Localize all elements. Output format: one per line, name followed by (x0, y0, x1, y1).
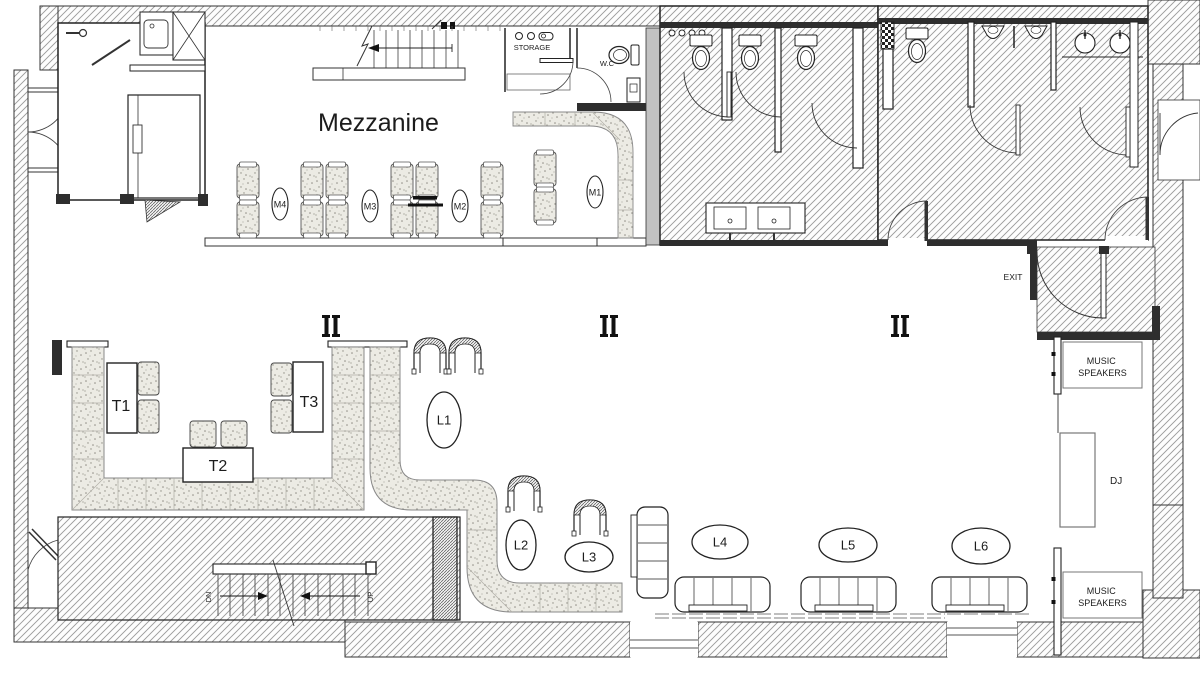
table-t1: T1 (107, 362, 159, 433)
storage-roll-icon (539, 33, 553, 41)
low-wall-line (655, 614, 1030, 618)
mezzanine-table-bar (413, 196, 437, 200)
tub-chair-icon (572, 500, 608, 536)
wc-partition-wall (646, 28, 660, 245)
stall-wall (883, 49, 893, 109)
mezzanine-table-bar (408, 204, 443, 207)
wc-wall (577, 103, 649, 111)
label-l1: L1 (437, 413, 451, 428)
stall-wall (853, 28, 863, 168)
basin-icon (714, 207, 746, 229)
label-t2: T2 (209, 458, 228, 475)
wc-basin-icon (627, 78, 640, 102)
wall-top-left-corner (40, 6, 58, 70)
wall-bottom-right-corner (1143, 590, 1200, 658)
mezzanine-chair (534, 150, 556, 188)
label-l3: L3 (582, 550, 596, 565)
ladies-toilets (660, 6, 878, 245)
column-icon (891, 315, 909, 337)
storage-room: STORAGE (505, 28, 573, 94)
lift-door-icon (145, 200, 180, 222)
mezzanine-chair (237, 200, 259, 238)
wc-door-swing (577, 68, 611, 102)
utility-rooms (56, 12, 208, 222)
label-l6: L6 (974, 539, 988, 554)
mezzanine-stair (313, 20, 500, 80)
table-t3: T3 (271, 362, 323, 433)
wall-stub-2 (120, 194, 134, 204)
column-icon (322, 315, 340, 337)
label-t1: T1 (112, 398, 131, 415)
label-storage: STORAGE (514, 43, 551, 52)
threshold-1 (630, 622, 698, 657)
mezzanine-rail (205, 238, 646, 246)
mezzanine-chair (237, 162, 259, 200)
label-music-top-1: MUSIC (1087, 356, 1117, 366)
chair (221, 421, 247, 447)
exit-door-leaf (1101, 252, 1106, 318)
label-wc: W.C (600, 59, 615, 68)
wall-left (14, 70, 28, 608)
right-side-room (1158, 100, 1200, 180)
lounge-seating: L1 L2 L3 L4 L5 L6 (412, 338, 1030, 618)
chair (138, 400, 159, 433)
speaker-box-bottom: MUSIC SPEAKERS (1063, 572, 1142, 618)
toilet-icon (795, 35, 817, 70)
bench-sofa (631, 507, 668, 598)
wall-notch (1152, 306, 1160, 334)
toilet-icon (906, 28, 928, 63)
floor-plan: Mezzanine (0, 0, 1200, 675)
vestibule-floor (1037, 247, 1155, 332)
mezzanine-chair (326, 162, 348, 200)
mezzanine-chair (326, 200, 348, 238)
wall-bottom-1 (345, 622, 630, 657)
mens-toilets (878, 6, 1148, 240)
speaker-stand-top (1052, 337, 1062, 394)
label-t3: T3 (300, 394, 319, 411)
toilet-icon (690, 35, 712, 70)
stair-wall (433, 517, 457, 620)
stair-rail (213, 564, 371, 574)
storage-bin-icon (528, 33, 535, 40)
stall-wall (968, 22, 974, 107)
label-dj: DJ (1110, 476, 1122, 487)
label-mezzanine: Mezzanine (318, 109, 439, 137)
chair (271, 400, 292, 433)
label-music-top-2: SPEAKERS (1078, 368, 1127, 378)
stair-newel (366, 562, 376, 574)
mezzanine-chair (534, 187, 556, 225)
label-exit: EXIT (1004, 272, 1023, 282)
sofa (801, 577, 896, 612)
hook-icon (679, 30, 685, 36)
storage-door-leaf (540, 59, 573, 63)
table-t2: T2 (183, 421, 253, 482)
label-m4: M4 (274, 200, 287, 210)
threshold-2 (947, 622, 1017, 657)
wall-stub-3 (198, 194, 208, 206)
dj-zone: MUSIC SPEAKERS DJ MUSIC SPEAKERS (1052, 337, 1143, 655)
label-m3: M3 (364, 202, 377, 212)
label-up: UP (366, 592, 375, 602)
basin-icon (758, 207, 790, 229)
wall-stub-1 (56, 194, 70, 204)
main-top-wall (660, 240, 1030, 246)
stall-door-leaf (1016, 105, 1020, 155)
label-m2: M2 (454, 202, 467, 212)
mezzanine-area: Mezzanine (205, 20, 646, 246)
stall-wall (1130, 22, 1138, 167)
label-l4: L4 (713, 535, 727, 550)
hook-icon (669, 30, 675, 36)
sink-unit-icon (140, 12, 173, 55)
toilet-icon (739, 35, 761, 70)
label-dn: DN (204, 592, 213, 603)
tub-chair-icon (506, 476, 542, 512)
sofa (675, 577, 770, 612)
tile-band-mezzanine (513, 112, 633, 238)
stall-door-leaf (727, 72, 731, 117)
mezzanine-chair (481, 200, 503, 238)
mezzanine-chair (391, 162, 413, 200)
wall-bottom-2 (698, 622, 947, 657)
label-l5: L5 (841, 538, 855, 553)
label-music-bottom-1: MUSIC (1087, 586, 1117, 596)
counter-wall (130, 65, 205, 71)
storage-bin-icon (516, 33, 523, 40)
wall-bottom-3 (1017, 622, 1160, 657)
lift-shaft (128, 95, 200, 222)
stall-wall (1051, 22, 1056, 90)
drainer-icon (173, 12, 205, 60)
floor-plan-page: Mezzanine (0, 0, 1200, 675)
mezzanine-chair (301, 162, 323, 200)
column-icon (600, 315, 618, 337)
label-l2: L2 (514, 538, 528, 553)
chair (138, 362, 159, 395)
stairwell: DN UP (58, 517, 460, 626)
mezzanine-chair (301, 200, 323, 238)
mezzanine-chair (416, 162, 438, 200)
wall-top-right (1148, 0, 1200, 64)
sofa (932, 577, 1027, 612)
label-music-bottom-2: SPEAKERS (1078, 598, 1127, 608)
chair (190, 421, 216, 447)
side-door (28, 529, 59, 570)
stair-arrow-icon (368, 44, 379, 52)
columns (322, 315, 909, 337)
stall-wall (775, 28, 781, 152)
mezzanine-chair (481, 162, 503, 200)
label-m1: M1 (589, 188, 602, 198)
stall-door-leaf (1126, 107, 1130, 157)
dj-booth (1060, 433, 1095, 527)
banquette-u: T1 T2 T3 (67, 341, 407, 510)
tub-chair-icon (412, 338, 448, 374)
wall-return (52, 340, 62, 375)
storage-door-swing (540, 61, 573, 94)
chair (271, 363, 292, 396)
speaker-box-top: MUSIC SPEAKERS (1063, 342, 1142, 388)
checker-mat-icon (881, 22, 894, 49)
tub-chair-icon (447, 338, 483, 374)
